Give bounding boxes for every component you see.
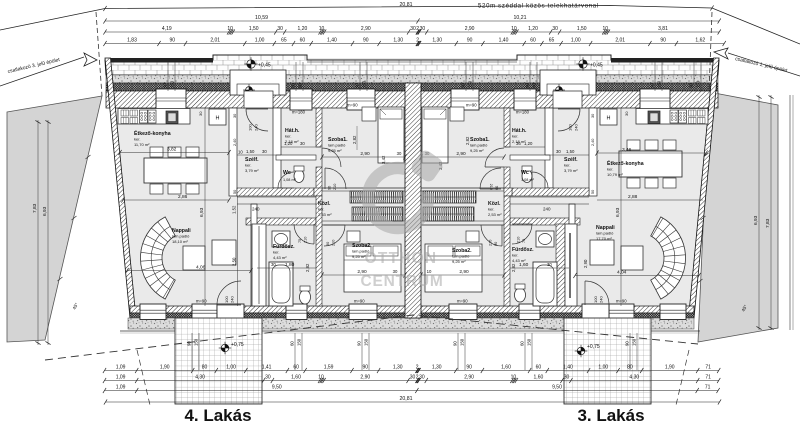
svg-text:ker.: ker. — [564, 162, 570, 167]
svg-text:2,90: 2,90 — [459, 269, 469, 275]
svg-text:1,90: 1,90 — [160, 364, 170, 370]
svg-text:80: 80 — [202, 364, 208, 370]
svg-text:ker.: ker. — [512, 133, 518, 138]
svg-text:1,60: 1,60 — [291, 374, 301, 380]
svg-text:9,50: 9,50 — [272, 384, 282, 390]
svg-text:2,53 m²: 2,53 m² — [488, 212, 502, 217]
svg-text:90: 90 — [363, 37, 369, 43]
svg-text:6,93: 6,93 — [199, 207, 205, 217]
svg-text:60: 60 — [520, 341, 525, 346]
svg-text:1,30: 1,30 — [432, 364, 442, 370]
svg-text:10: 10 — [511, 26, 517, 32]
svg-text:1,50: 1,50 — [577, 26, 587, 32]
svg-text:90: 90 — [326, 242, 330, 246]
svg-text:m=90: m=90 — [347, 103, 358, 108]
svg-text:1,08 m²: 1,08 m² — [521, 178, 535, 182]
svg-text:9,25 m²: 9,25 m² — [452, 259, 466, 264]
svg-text:11,70 m²: 11,70 m² — [134, 142, 150, 147]
svg-text:10: 10 — [318, 374, 324, 380]
svg-text:210: 210 — [517, 237, 521, 243]
svg-text:2,86: 2,86 — [178, 194, 188, 200]
svg-text:80: 80 — [627, 364, 633, 370]
svg-text:10: 10 — [511, 374, 517, 380]
svg-text:30: 30 — [410, 374, 416, 380]
svg-text:7,83: 7,83 — [32, 203, 38, 213]
svg-text:6,93: 6,93 — [753, 215, 759, 225]
svg-text:30: 30 — [300, 141, 305, 146]
svg-text:100: 100 — [248, 124, 253, 131]
svg-text:m=90: m=90 — [616, 299, 627, 304]
svg-text:2,90: 2,90 — [360, 374, 370, 380]
svg-text:4,30: 4,30 — [629, 374, 639, 380]
svg-text:+0,45: +0,45 — [590, 63, 603, 69]
svg-text:30: 30 — [591, 114, 595, 118]
svg-text:1,59: 1,59 — [324, 364, 334, 370]
svg-text:1,30: 1,30 — [432, 37, 442, 43]
svg-text:2: 2 — [416, 37, 419, 43]
svg-text:1,00: 1,00 — [598, 364, 608, 370]
svg-text:1,20: 1,20 — [298, 26, 308, 32]
svg-text:3,79 m²: 3,79 m² — [245, 168, 259, 173]
svg-text:H: H — [607, 116, 611, 122]
svg-text:150: 150 — [632, 338, 637, 346]
svg-text:240: 240 — [574, 124, 579, 131]
svg-text:ker.: ker. — [245, 162, 251, 167]
svg-text:3,42: 3,42 — [381, 155, 386, 164]
svg-text:2,40: 2,40 — [233, 139, 237, 146]
svg-text:2,82: 2,82 — [352, 135, 357, 144]
svg-text:2,50: 2,50 — [232, 257, 237, 266]
svg-text:60: 60 — [530, 37, 536, 43]
svg-text:150: 150 — [696, 80, 701, 88]
svg-text:m=90: m=90 — [466, 103, 477, 108]
svg-text:4. Lakás: 4. Lakás — [184, 406, 251, 425]
svg-text:90: 90 — [357, 341, 362, 346]
svg-text:1,09: 1,09 — [116, 364, 126, 370]
svg-text:m=90: m=90 — [457, 299, 468, 304]
svg-text:1,60: 1,60 — [519, 262, 529, 268]
svg-text:60: 60 — [532, 83, 537, 88]
svg-text:10: 10 — [603, 26, 609, 32]
svg-text:1,83: 1,83 — [127, 37, 137, 43]
svg-text:1,52: 1,52 — [232, 205, 237, 214]
svg-text:1,50: 1,50 — [249, 26, 259, 32]
svg-text:10: 10 — [238, 150, 243, 155]
svg-text:240: 240 — [543, 207, 551, 212]
svg-text:1,20: 1,20 — [528, 26, 538, 32]
svg-text:ker.: ker. — [285, 133, 291, 138]
svg-text:30: 30 — [397, 151, 402, 156]
svg-text:240: 240 — [230, 296, 235, 303]
svg-text:17,70 m²: 17,70 m² — [596, 236, 612, 241]
svg-text:m=180: m=180 — [292, 110, 306, 115]
svg-text:30: 30 — [271, 262, 276, 267]
svg-text:10,21: 10,21 — [514, 15, 527, 21]
svg-text:150: 150 — [194, 338, 199, 346]
svg-text:1,40: 1,40 — [327, 37, 337, 43]
svg-text:30: 30 — [420, 26, 426, 32]
svg-text:+0,75: +0,75 — [587, 344, 600, 350]
svg-text:150: 150 — [468, 80, 473, 88]
svg-text:9,50: 9,50 — [552, 384, 562, 390]
svg-text:60: 60 — [525, 83, 530, 88]
svg-text:2,90: 2,90 — [360, 151, 370, 157]
svg-text:lam.padló: lam.padló — [452, 253, 470, 258]
svg-text:1,00: 1,00 — [571, 37, 581, 43]
svg-text:60: 60 — [290, 341, 295, 346]
svg-text:30: 30 — [198, 111, 203, 116]
svg-text:150: 150 — [170, 80, 175, 88]
svg-text:20,81: 20,81 — [400, 2, 413, 8]
svg-text:1,80: 1,80 — [285, 262, 295, 268]
svg-text:240: 240 — [599, 296, 604, 303]
svg-text:m=90: m=90 — [354, 299, 365, 304]
svg-text:3,46: 3,46 — [622, 147, 632, 153]
svg-text:150: 150 — [527, 338, 532, 346]
svg-text:18,10 m²: 18,10 m² — [172, 239, 188, 244]
svg-text:60: 60 — [291, 83, 296, 88]
svg-text:Wc: Wc — [283, 170, 291, 176]
svg-text:2,53 m²: 2,53 m² — [318, 212, 332, 217]
svg-text:1,40: 1,40 — [563, 364, 573, 370]
svg-text:2,01: 2,01 — [210, 37, 220, 43]
svg-text:1,09: 1,09 — [116, 374, 126, 380]
svg-text:4,30: 4,30 — [195, 374, 205, 380]
svg-text:100: 100 — [224, 296, 229, 303]
svg-text:2,90: 2,90 — [465, 26, 475, 32]
svg-text:1,40: 1,40 — [499, 37, 509, 43]
svg-text:210: 210 — [332, 240, 336, 246]
svg-text:10: 10 — [319, 26, 325, 32]
svg-text:2,82: 2,82 — [511, 263, 516, 272]
svg-text:30: 30 — [277, 26, 283, 32]
svg-text:9,25 m²: 9,25 m² — [328, 148, 342, 153]
svg-text:150: 150 — [297, 338, 302, 346]
svg-text:1,60: 1,60 — [534, 374, 544, 380]
svg-text:90: 90 — [466, 364, 472, 370]
svg-text:240: 240 — [252, 207, 260, 212]
svg-text:ker.: ker. — [488, 206, 494, 211]
svg-text:65: 65 — [549, 37, 555, 43]
svg-text:2,40: 2,40 — [591, 139, 595, 146]
svg-text:OTTHON: OTTHON — [365, 250, 438, 267]
svg-text:60: 60 — [300, 37, 306, 43]
svg-text:210: 210 — [489, 240, 493, 246]
svg-text:150: 150 — [364, 338, 369, 346]
svg-text:71: 71 — [705, 384, 711, 390]
svg-text:H: H — [216, 116, 220, 122]
svg-text:90: 90 — [467, 37, 473, 43]
svg-text:+0,75: +0,75 — [231, 342, 244, 348]
svg-text:1,08 m²: 1,08 m² — [283, 178, 297, 182]
svg-text:30: 30 — [233, 114, 237, 118]
svg-text:90: 90 — [495, 186, 499, 190]
svg-text:1,30: 1,30 — [393, 37, 403, 43]
svg-text:90: 90 — [163, 83, 168, 88]
svg-text:50: 50 — [233, 190, 237, 194]
svg-text:150: 150 — [362, 80, 367, 88]
svg-text:90: 90 — [650, 83, 655, 88]
svg-text:m=90: m=90 — [196, 299, 207, 304]
svg-text:1,50: 1,50 — [566, 149, 575, 154]
svg-text:210: 210 — [333, 184, 337, 190]
svg-text:65: 65 — [281, 37, 287, 43]
svg-text:90: 90 — [453, 341, 458, 346]
svg-text:4,19: 4,19 — [162, 26, 172, 32]
svg-text:30: 30 — [262, 149, 267, 154]
svg-text:m=180: m=180 — [516, 110, 530, 115]
svg-text:30: 30 — [556, 149, 561, 154]
svg-text:1,00: 1,00 — [255, 37, 265, 43]
svg-text:10: 10 — [227, 26, 233, 32]
svg-text:90: 90 — [625, 341, 630, 346]
svg-text:4,06: 4,06 — [196, 265, 206, 271]
svg-text:1,90: 1,90 — [665, 364, 675, 370]
svg-text:2,90: 2,90 — [361, 26, 371, 32]
svg-text:lam.padló: lam.padló — [328, 142, 346, 147]
svg-text:ker.: ker. — [134, 136, 140, 141]
svg-text:20,81: 20,81 — [400, 396, 413, 402]
svg-text:3,82: 3,82 — [167, 147, 177, 153]
svg-text:2,82: 2,82 — [465, 136, 470, 145]
svg-text:6,93: 6,93 — [42, 206, 48, 216]
svg-text:30: 30 — [410, 26, 416, 32]
svg-text:90: 90 — [355, 83, 360, 88]
svg-text:30: 30 — [624, 111, 629, 116]
svg-text:2,01: 2,01 — [615, 37, 625, 43]
svg-text:1,41: 1,41 — [262, 364, 272, 370]
svg-text:1,62: 1,62 — [695, 37, 705, 43]
svg-text:2,90: 2,90 — [583, 259, 588, 268]
svg-text:90: 90 — [187, 341, 192, 346]
svg-text:75: 75 — [522, 239, 526, 243]
svg-text:60: 60 — [536, 364, 542, 370]
svg-text:240: 240 — [254, 124, 259, 131]
svg-text:75: 75 — [298, 239, 302, 243]
svg-text:90: 90 — [328, 186, 332, 190]
svg-text:2,82: 2,82 — [305, 263, 310, 272]
svg-text:ker.: ker. — [273, 249, 279, 254]
svg-text:1,60: 1,60 — [501, 364, 511, 370]
svg-text:1,50: 1,50 — [246, 149, 255, 154]
svg-text:ker.: ker. — [318, 206, 324, 211]
svg-text:CENTRUM: CENTRUM — [360, 273, 443, 290]
svg-text:100: 100 — [568, 124, 573, 131]
svg-text:210: 210 — [304, 237, 308, 243]
svg-text:2,88: 2,88 — [628, 194, 638, 200]
svg-text:520m széddal közös telekhatárv: 520m széddal közös telekhatárvonal — [478, 4, 599, 10]
svg-text:90: 90 — [461, 83, 466, 88]
svg-text:3,79 m²: 3,79 m² — [564, 168, 578, 173]
svg-text:60: 60 — [293, 364, 299, 370]
svg-text:210: 210 — [489, 184, 493, 190]
svg-text:Wc: Wc — [521, 170, 529, 176]
svg-text:2: 2 — [416, 364, 419, 370]
svg-text:1,30: 1,30 — [393, 364, 403, 370]
svg-text:4,43 m²: 4,43 m² — [273, 255, 287, 260]
svg-text:1,20: 1,20 — [524, 141, 533, 146]
svg-text:60: 60 — [298, 83, 303, 88]
svg-text:2,90: 2,90 — [456, 151, 466, 157]
svg-text:lam.padló: lam.padló — [596, 230, 614, 235]
svg-text:30: 30 — [265, 374, 271, 380]
svg-text:90: 90 — [494, 242, 498, 246]
svg-text:71: 71 — [705, 374, 711, 380]
svg-text:2,90: 2,90 — [464, 374, 474, 380]
svg-text:30: 30 — [564, 374, 570, 380]
svg-text:100: 100 — [593, 296, 598, 303]
svg-text:30: 30 — [419, 374, 425, 380]
svg-text:4,04: 4,04 — [617, 270, 627, 276]
svg-text:30: 30 — [552, 26, 558, 32]
svg-text:90: 90 — [170, 37, 176, 43]
svg-text:lam.padló: lam.padló — [470, 142, 488, 147]
svg-text:ker.: ker. — [512, 252, 518, 257]
svg-text:30: 30 — [547, 262, 552, 267]
svg-text:9,25 m²: 9,25 m² — [470, 148, 484, 153]
svg-text:1,00: 1,00 — [226, 364, 236, 370]
svg-text:71: 71 — [705, 364, 711, 370]
svg-text:50: 50 — [591, 190, 595, 194]
svg-text:90: 90 — [660, 37, 666, 43]
svg-text:90: 90 — [363, 364, 369, 370]
svg-text:150: 150 — [460, 338, 465, 346]
svg-text:90: 90 — [689, 83, 694, 88]
svg-text:7,83: 7,83 — [765, 218, 771, 228]
svg-text:1,20: 1,20 — [284, 141, 293, 146]
svg-text:lam.padló: lam.padló — [172, 233, 190, 238]
svg-text:1,09: 1,09 — [116, 384, 126, 390]
svg-text:10,59: 10,59 — [255, 15, 268, 21]
svg-text:+0,45: +0,45 — [258, 63, 271, 69]
svg-text:36: 36 — [516, 141, 521, 146]
svg-text:ker.: ker. — [607, 166, 613, 171]
svg-text:6,93: 6,93 — [615, 207, 621, 217]
svg-text:3. Lakás: 3. Lakás — [577, 406, 644, 425]
svg-text:3,81: 3,81 — [658, 26, 668, 32]
svg-text:150: 150 — [657, 80, 662, 88]
